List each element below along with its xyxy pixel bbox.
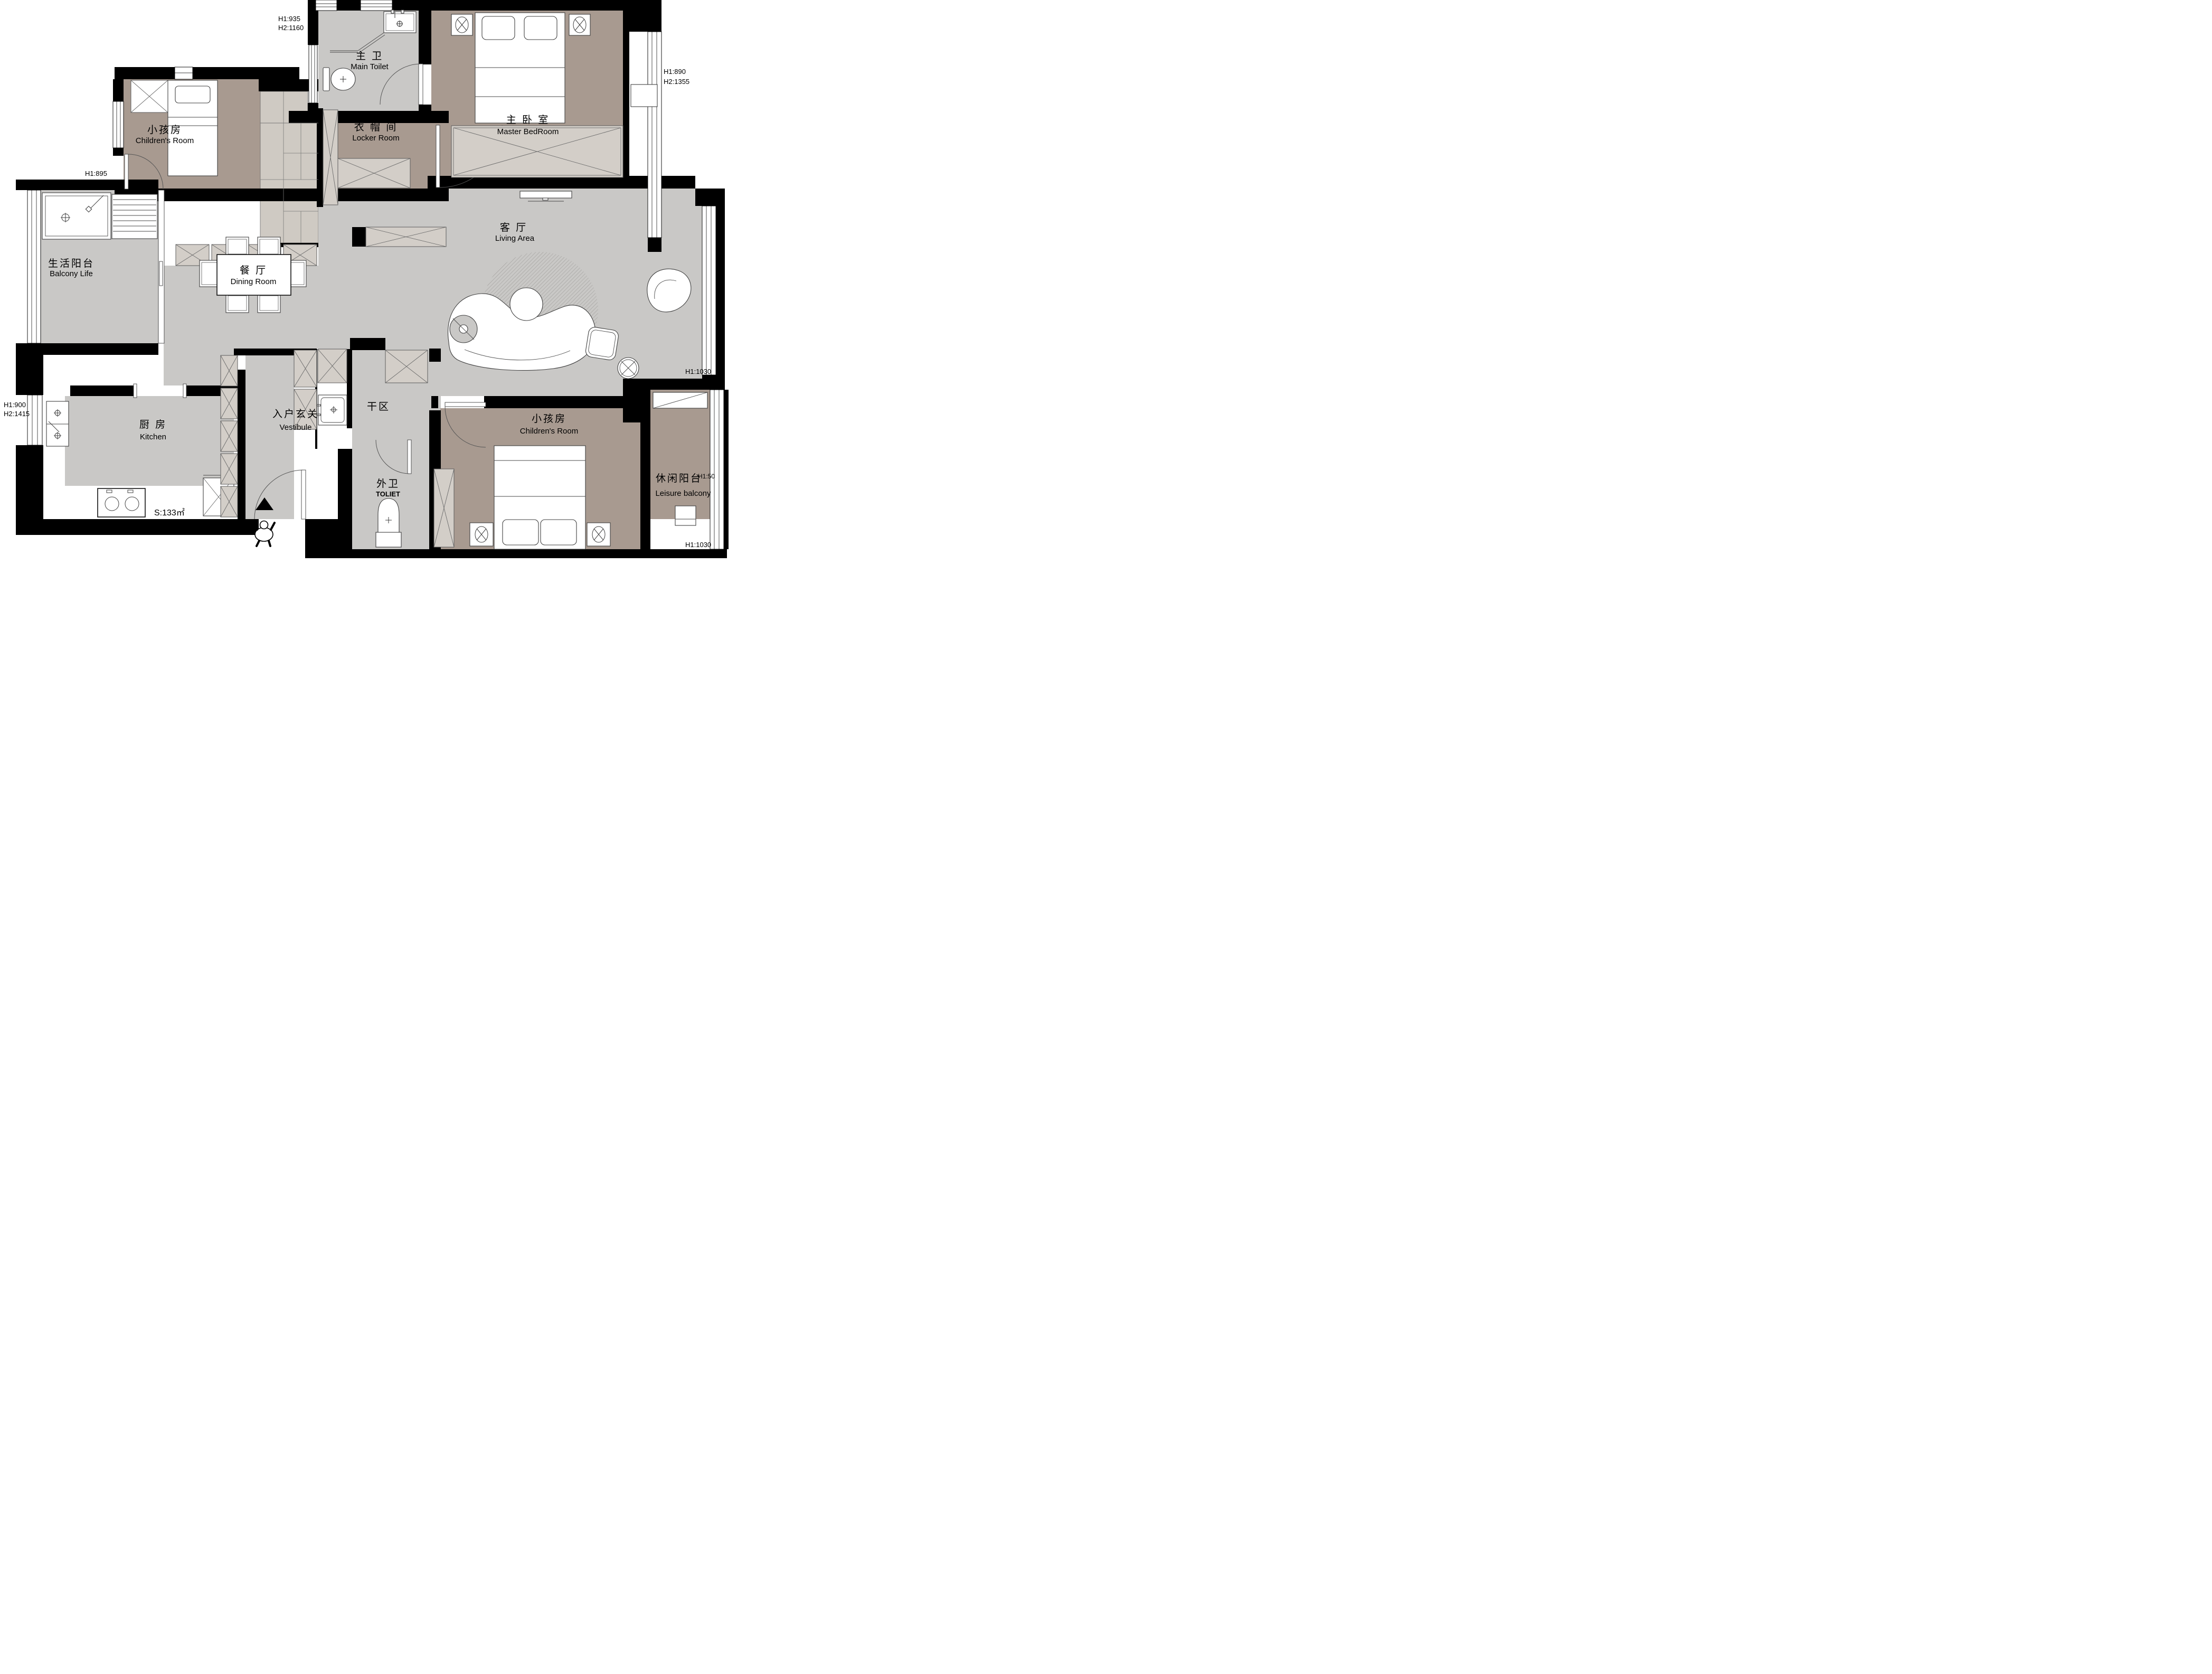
side-table [618, 358, 639, 379]
sliding-door [158, 190, 164, 343]
children-bottom-bed [494, 446, 585, 549]
dim-left-lower-h2: H2:1415 [4, 410, 30, 418]
locker-cabinet-low [338, 158, 410, 188]
vestibule-label-zh: 入户玄关 [272, 408, 319, 420]
locker-door-leaf [436, 125, 440, 187]
kitchen-door-jamb-left [134, 384, 137, 398]
kitchen-door-jamb-right [183, 384, 186, 398]
window-kitchen-left [27, 395, 42, 445]
master-bed [475, 13, 565, 123]
dim-left-upper-h1: H1:895 [85, 170, 107, 177]
total-area-label: S:133㎡ [154, 508, 185, 518]
dim-right-upper-h1: H1:890 [664, 68, 686, 76]
outer-toilet-door-leaf [408, 440, 411, 474]
bay-dresser [631, 84, 657, 107]
dry-area-cabinet [318, 349, 347, 383]
main-toilet-label-zh: 主 卫 [356, 50, 383, 62]
children-top-label-zh: 小孩房 [147, 124, 182, 136]
master-label-en: Master BedRoom [497, 127, 559, 136]
floor-lamp [450, 315, 477, 343]
window-balcony-life [27, 190, 41, 343]
main-toilet-door-leaf [419, 64, 423, 105]
lounge-cushion [585, 326, 619, 361]
children-top-label-en: Children's Room [136, 136, 194, 145]
leisure-height-label: H1:50 [698, 473, 715, 480]
leisure-label-en: Leisure balcony [655, 489, 711, 498]
vestibule-label-en: Vestibule [280, 423, 312, 432]
leisure-label-zh: 休闲阳台 [656, 473, 702, 484]
closet-block-lower [260, 123, 318, 243]
master-nightstand-right [569, 14, 590, 35]
balcony-life-label-zh: 生活阳台 [48, 258, 94, 269]
kitchen-sink [46, 401, 69, 446]
window-main-toilet-left [309, 45, 317, 103]
dry-area-label-zh: 干区 [367, 401, 390, 412]
toilet-fixture-outer [376, 499, 401, 547]
window-children-top-small [175, 67, 193, 79]
floor-plan-drawing: 主 卫 Main Toilet 小孩房 Children's Room 衣 帽 … [0, 0, 738, 558]
dining-chair-bottom-left [226, 294, 249, 313]
dry-area-niche-cabinet [385, 350, 428, 383]
window-living-right [702, 206, 716, 375]
floor-plan-canvas: 主 卫 Main Toilet 小孩房 Children's Room 衣 帽 … [0, 0, 738, 558]
leisure-cabinet [675, 506, 696, 525]
children-top-cabinet [131, 80, 168, 112]
dining-chair-top-right [258, 237, 280, 256]
locker-wardrobe-tall [323, 110, 338, 205]
kitchen-label-en: Kitchen [140, 432, 166, 441]
dry-area-vanity [317, 395, 347, 425]
dim-left-lower-h1: H1:900 [4, 401, 26, 409]
hallway-sideboard [366, 227, 446, 247]
children-bottom-label-en: Children's Room [520, 427, 578, 436]
vestibule-cabinet-column-left [221, 355, 238, 517]
children-top-door-leaf [125, 154, 128, 189]
bath-vanity [384, 10, 416, 33]
window-children-top-left [113, 101, 124, 148]
master-label-zh: 主 卧 室 [506, 114, 550, 126]
dim-right-upper-h2: H2:1355 [664, 78, 689, 86]
dining-label-zh: 餐 厅 [240, 265, 267, 276]
children-bottom-wardrobe [434, 469, 454, 547]
children-bottom-door-leaf [445, 402, 486, 407]
children-bottom-nightstand-left [470, 523, 493, 546]
master-nightstand-left [451, 14, 472, 35]
main-toilet-label-en: Main Toilet [351, 62, 389, 71]
ottoman [510, 288, 543, 321]
window-leisure-right [710, 390, 724, 549]
window-master-bay [648, 32, 661, 238]
dim-top-left-h1: H1:935 [278, 15, 300, 23]
outer-toilet-label-en: TOLIET [376, 490, 400, 498]
stove [98, 488, 145, 517]
window-main-toilet-top [316, 0, 337, 11]
dim-right-bottom: H1:1030 [685, 541, 711, 549]
dim-top-left-h2: H2:1160 [278, 24, 304, 32]
dining-label-en: Dining Room [231, 277, 277, 286]
children-bottom-label-zh: 小孩房 [532, 413, 566, 425]
vestibule-floor [245, 355, 294, 519]
locker-label-en: Locker Room [352, 134, 399, 143]
dining-chair-bottom-right [258, 294, 280, 313]
laundry-sink [42, 193, 111, 239]
leisure-floor [650, 390, 710, 519]
dim-left-upper-h2: H2:1390 [85, 182, 111, 190]
window-main-toilet-top-2 [361, 0, 392, 11]
entrance-door-leaf [301, 470, 306, 519]
ac-unit [653, 392, 707, 408]
louver-rack [112, 194, 157, 239]
living-floor-south [441, 379, 623, 396]
balcony-life-label-en: Balcony Life [50, 269, 93, 278]
living-label-zh: 客 厅 [500, 222, 527, 233]
dim-right-mid: H1:1030 [685, 368, 711, 375]
kitchen-label-zh: 厨 房 [139, 419, 167, 430]
children-bottom-nightstand-right [587, 523, 610, 546]
outer-toilet-label-zh: 外卫 [376, 478, 400, 490]
locker-label-zh: 衣 帽 间 [354, 121, 398, 133]
dining-chair-top-left [226, 237, 249, 256]
living-label-en: Living Area [495, 234, 535, 243]
